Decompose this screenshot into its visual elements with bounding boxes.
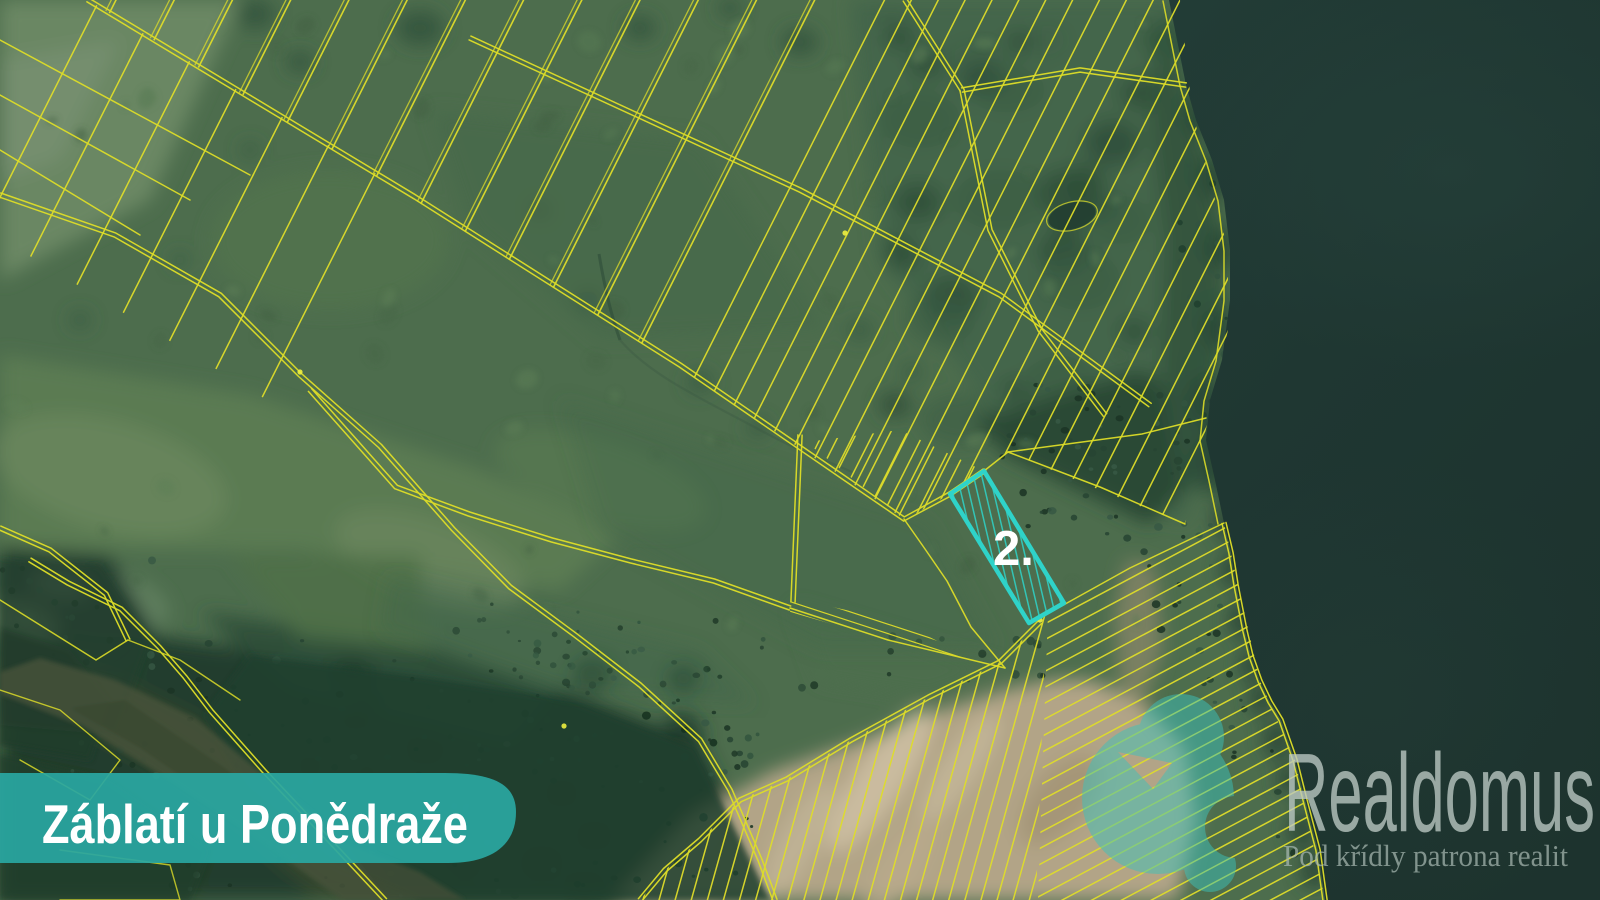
svg-text:Záblatí u Ponědraže: Záblatí u Ponědraže <box>42 793 468 855</box>
svg-text:Pod křídly patrona realit: Pod křídly patrona realit <box>1283 838 1568 873</box>
svg-text:2.: 2. <box>993 522 1034 576</box>
svg-text:Realdomus: Realdomus <box>1284 731 1595 855</box>
